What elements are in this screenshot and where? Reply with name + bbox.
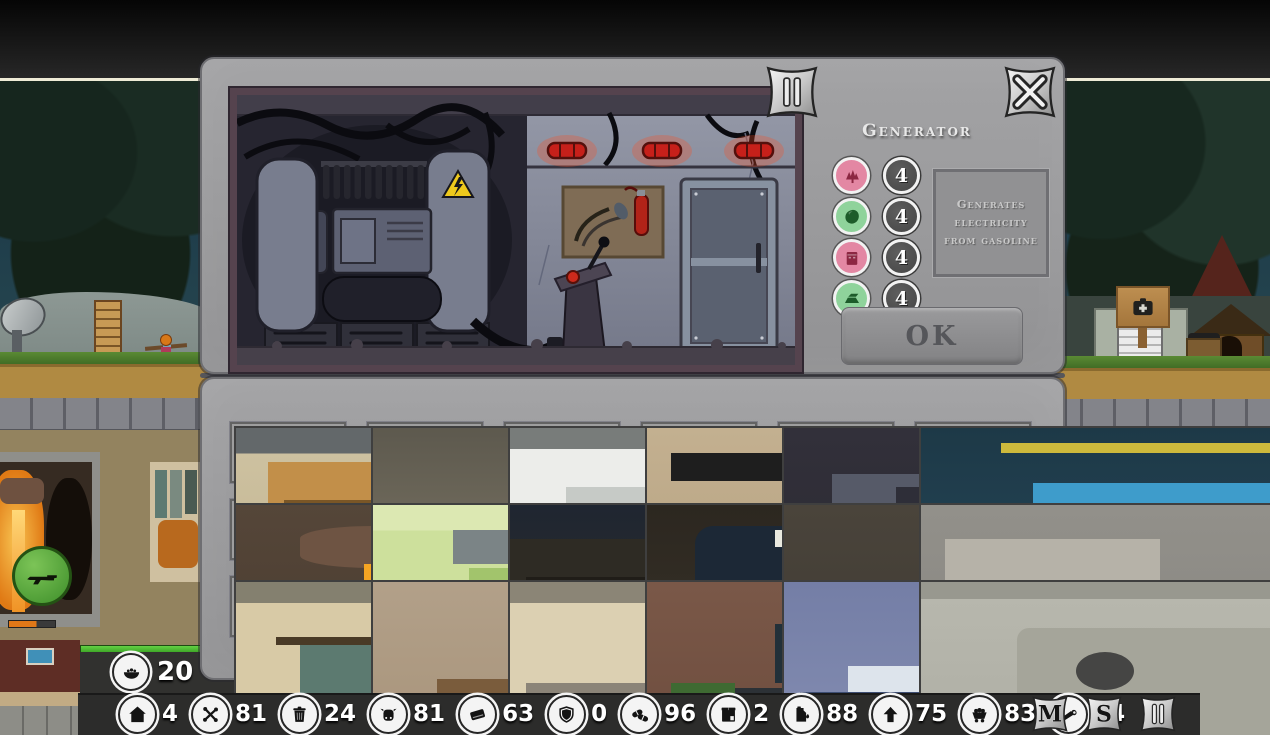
room-thumb-kitchen[interactable] [367,499,483,560]
cost-row-wood: 4 [833,157,920,194]
dirt-band-left [0,364,215,399]
resource-value: 4 [162,701,178,727]
map-button[interactable]: M [1028,694,1072,734]
hanging-cloth [155,470,167,518]
hud-buttons: M S [1028,694,1198,734]
scrap-icon [191,695,230,734]
hud-resource-coal-cart: 83 [960,695,1036,734]
hud-resource-shield: 0 [547,695,607,734]
hud-resource-trash: 24 [280,695,356,734]
hud-resource-upgrade: 75 [871,695,947,734]
room-thumb-animal-pen[interactable] [504,499,620,560]
stone-blocks-left [0,706,80,735]
cost-list: 4444 [833,157,920,317]
room-thumb-generator-room[interactable] [778,422,894,483]
stone-ledge-left [0,692,80,706]
generator-room-preview [230,88,802,372]
food-bowl-icon [112,653,150,691]
package-icon [709,695,748,734]
room-thumb-concrete-mixer-room[interactable] [915,499,1031,560]
room-thumb-water-filtration-room[interactable] [915,422,1031,483]
weapon-button[interactable] [12,546,72,606]
resource-value: 24 [324,701,356,727]
ok-button[interactable]: OK [841,307,1023,365]
pause-button[interactable] [1136,694,1180,734]
room-thumb-carpentry-room[interactable] [504,576,620,637]
stone-wall-left [0,398,215,431]
hud-resource-livestock: 81 [369,695,445,734]
room-thumb-empty-room[interactable] [915,576,1031,637]
hanging-cloth [170,470,182,518]
room-detail-panel: Generator 4444 Generates electricity fro… [200,57,1065,374]
room-thumb-chemistry-lab[interactable] [778,576,894,637]
leather-pile [158,520,198,568]
medkit-sign [1116,286,1170,328]
hud-resource-fuel: 88 [782,695,858,734]
status-oval [1076,652,1134,690]
resource-value: 2 [753,701,769,727]
scarecrow-head [160,334,172,346]
room-thumb-bedroom[interactable] [641,422,757,483]
close-button[interactable] [1001,63,1059,121]
room-thumb-junk-room[interactable] [367,422,483,483]
room-thumb-workshop[interactable] [778,499,894,560]
stove-parts-icon [833,239,870,276]
resource-value: 75 [915,701,947,727]
dirt-band-right [1050,368,1270,400]
resource-counters: 481248163096288758344 [118,693,1018,735]
resource-value: 81 [413,701,445,727]
book-icon [458,695,497,734]
room-description: Generates electricity from gasoline [933,169,1049,277]
resource-value: 0 [591,701,607,727]
resource-value: 81 [235,701,267,727]
sign-post [1138,328,1147,348]
upgrade-icon [871,695,910,734]
home-icon [118,695,157,734]
rubber-icon [833,198,870,235]
room-title: Generator [802,121,1032,141]
room-thumb-underground-farm[interactable] [641,499,757,560]
trash-icon [280,695,319,734]
cost-value: 4 [883,157,920,194]
wood-icon [833,157,870,194]
rifle-icon [22,556,62,596]
svg-text:S: S [1096,702,1112,728]
living-room-bg [0,640,80,696]
hud-resource-medicine: 96 [620,695,696,734]
medkit-icon [1128,292,1158,322]
cost-value: 4 [883,198,920,235]
room-thumb-tailor-room[interactable] [230,576,346,637]
crucible [0,478,44,504]
progress-bar-small [8,620,56,628]
hud-resource-package: 2 [709,695,769,734]
shield-icon [547,695,586,734]
room-thumb-radio-room[interactable] [367,576,483,637]
room-thumb-infirmary[interactable] [504,422,620,483]
cost-value: 4 [883,239,920,276]
sleep-button[interactable]: S [1082,694,1126,734]
room-thumb-foundry[interactable] [230,499,346,560]
pause-button-top[interactable] [763,63,821,121]
hanging-cloth [185,470,197,514]
room-thumb-storage-room[interactable] [230,422,346,483]
hud-resource-home: 4 [118,695,178,734]
room-thumb-security-room[interactable] [641,576,757,637]
doghouse-roof [1190,304,1270,336]
room-thumbnail-grid [230,422,1031,637]
resource-value: 63 [502,701,534,727]
resource-value: 96 [664,701,696,727]
food-value: 20 [157,657,193,687]
hud-resource-book: 63 [458,695,534,734]
cost-row-stove-parts: 4 [833,239,920,276]
medicine-icon [620,695,659,734]
resource-value: 88 [826,701,858,727]
svg-text:M: M [1038,702,1062,728]
fuel-icon [782,695,821,734]
build-room-dialog: Generator 4444 Generates electricity fro… [200,57,1065,680]
coal-cart-icon [960,695,999,734]
room-catalog-panel [200,377,1065,680]
livestock-icon [369,695,408,734]
generator-room-art [237,95,795,365]
game-screen: 20 [0,0,1270,735]
hud-resource-scrap: 81 [191,695,267,734]
fish-tank [26,648,54,665]
cost-row-rubber: 4 [833,198,920,235]
